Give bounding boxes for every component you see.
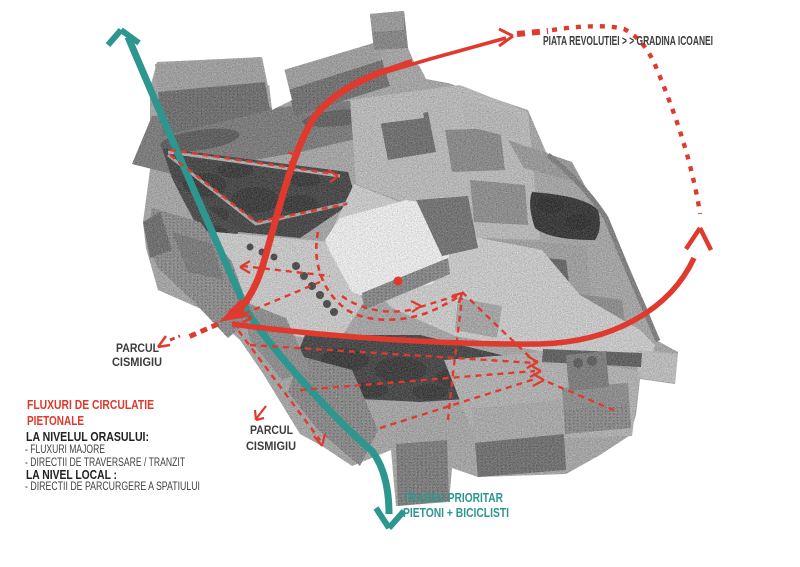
svg-text:- DIRECTII DE PARCURGERE A SP: - DIRECTII DE PARCURGERE A SPATIULUI bbox=[25, 481, 200, 493]
svg-text:TRASEU PRIORITAR: TRASEU PRIORITAR bbox=[403, 490, 503, 505]
svg-text:LA NIVEL LOCAL :: LA NIVEL LOCAL : bbox=[26, 467, 117, 482]
svg-text:CISMIGIU: CISMIGIU bbox=[246, 439, 296, 453]
svg-text:LA NIVELUL ORASULUI:: LA NIVELUL ORASULUI: bbox=[26, 429, 149, 444]
svg-text:PARCUL: PARCUL bbox=[250, 423, 293, 437]
svg-text:FLUXURI DE CIRCULATIE: FLUXURI DE CIRCULATIE bbox=[27, 397, 154, 412]
svg-text:PIETONALE: PIETONALE bbox=[27, 413, 84, 428]
svg-text:- FLUXURI MAJORE: - FLUXURI MAJORE bbox=[25, 444, 105, 456]
svg-text:CISMIGIU: CISMIGIU bbox=[112, 355, 162, 369]
svg-text:PIETONI + BICICLISTI: PIETONI + BICICLISTI bbox=[403, 505, 509, 520]
svg-text:PARCUL: PARCUL bbox=[116, 341, 159, 355]
svg-text:PIATA REVOLUTIEI > > GRADINA I: PIATA REVOLUTIEI > > GRADINA ICOANEI bbox=[543, 33, 713, 48]
